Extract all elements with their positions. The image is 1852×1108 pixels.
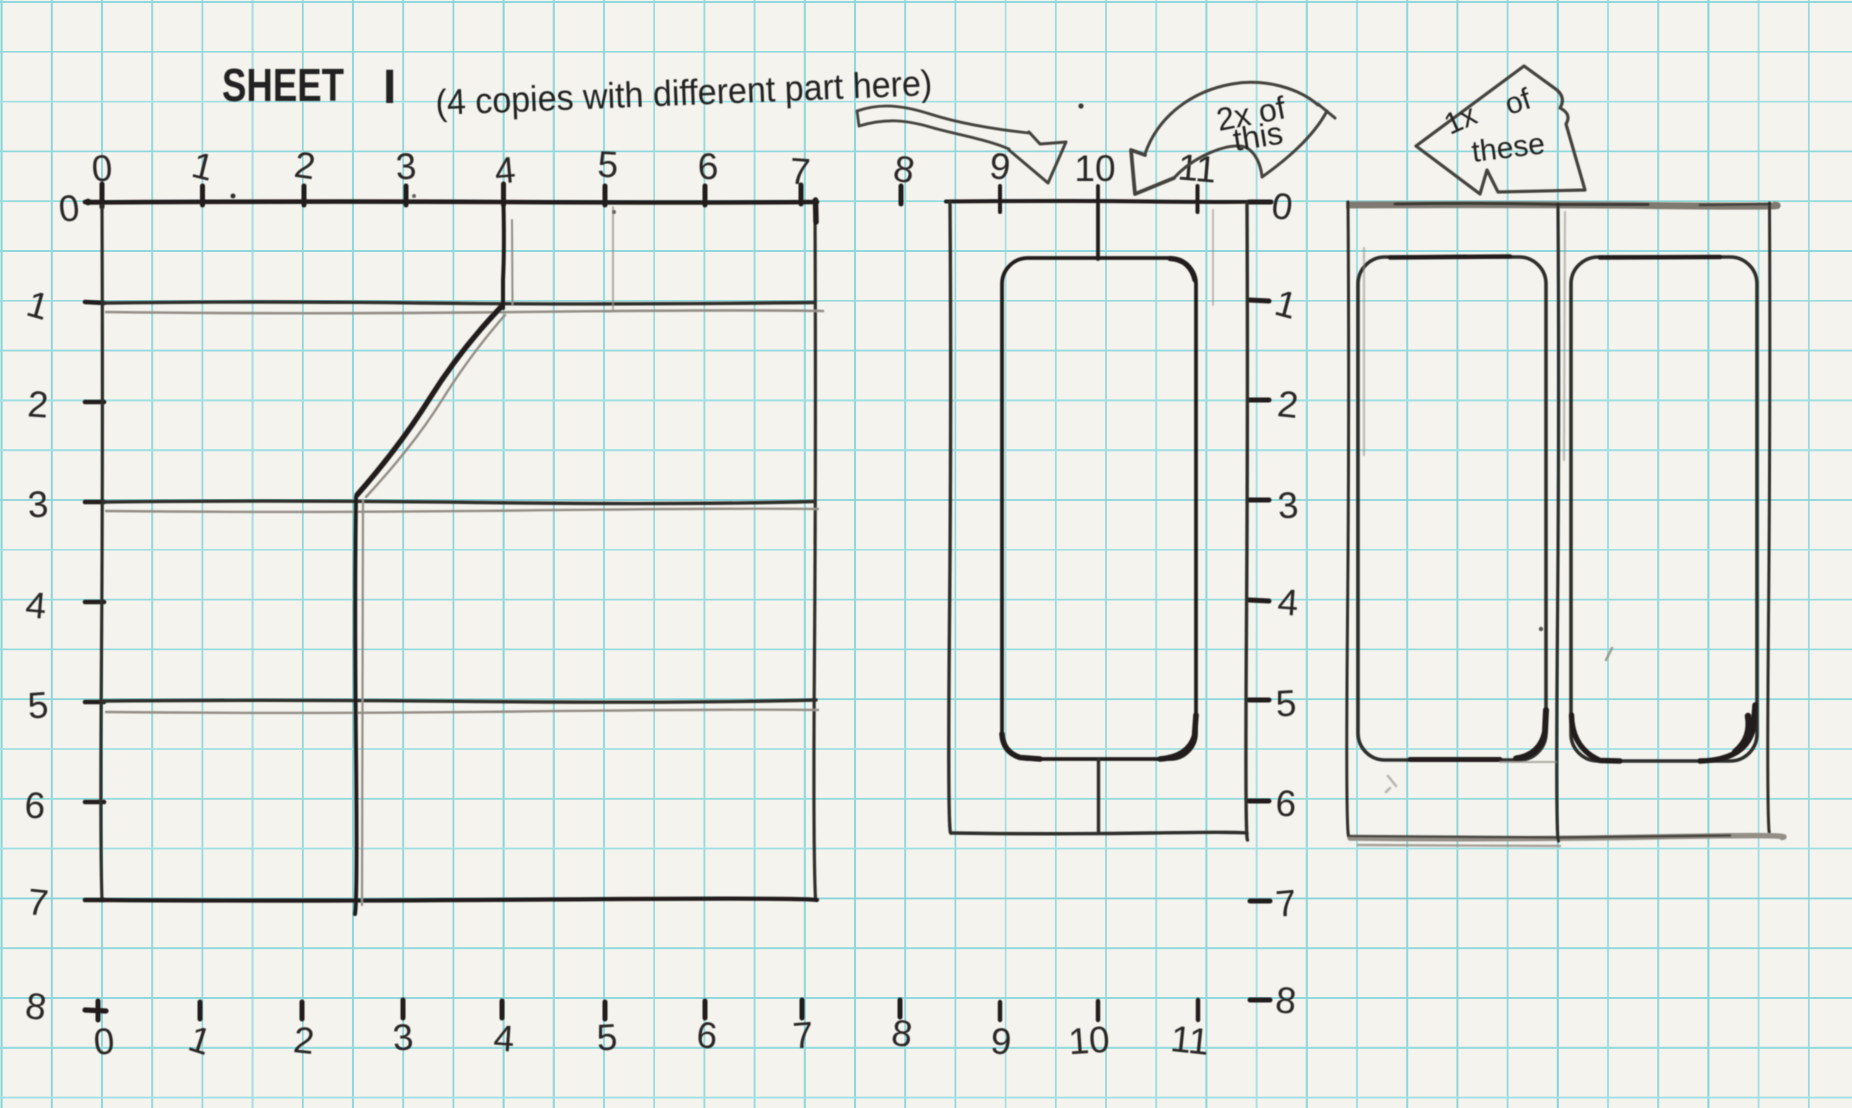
svg-text:6: 6	[697, 146, 719, 188]
svg-text:I: I	[383, 61, 396, 114]
svg-text:4: 4	[492, 1017, 515, 1059]
svg-text:this: this	[1230, 115, 1285, 158]
svg-text:4: 4	[1276, 581, 1299, 623]
svg-text:0: 0	[57, 187, 82, 230]
svg-text:9: 9	[989, 1020, 1013, 1063]
svg-text:6: 6	[695, 1014, 719, 1057]
svg-text:7: 7	[791, 1014, 814, 1056]
svg-text:5: 5	[596, 1016, 619, 1058]
svg-text:7: 7	[26, 881, 51, 924]
svg-text:0: 0	[92, 1020, 116, 1063]
svg-text:10: 10	[1067, 1019, 1111, 1063]
svg-text:3: 3	[395, 145, 418, 187]
svg-text:3: 3	[391, 1016, 414, 1058]
svg-text:5: 5	[597, 143, 620, 185]
svg-text:4: 4	[24, 584, 48, 627]
svg-text:3: 3	[1276, 484, 1299, 526]
svg-text:11: 11	[1169, 1018, 1211, 1063]
svg-text:4: 4	[493, 149, 517, 192]
svg-text:5: 5	[26, 684, 49, 726]
svg-text:0: 0	[90, 147, 113, 189]
svg-text:8: 8	[1274, 979, 1299, 1022]
svg-text:6: 6	[1275, 782, 1298, 824]
svg-text:7: 7	[1274, 882, 1298, 925]
svg-text:2: 2	[1276, 383, 1301, 426]
svg-text:6: 6	[24, 784, 47, 826]
svg-text:10: 10	[1074, 148, 1115, 189]
svg-text:3: 3	[27, 483, 50, 525]
svg-text:2: 2	[26, 383, 49, 425]
svg-text:7: 7	[788, 150, 811, 192]
svg-text:2: 2	[292, 1019, 317, 1062]
svg-text:5: 5	[1275, 682, 1298, 724]
svg-text:SHEET: SHEET	[222, 59, 344, 111]
